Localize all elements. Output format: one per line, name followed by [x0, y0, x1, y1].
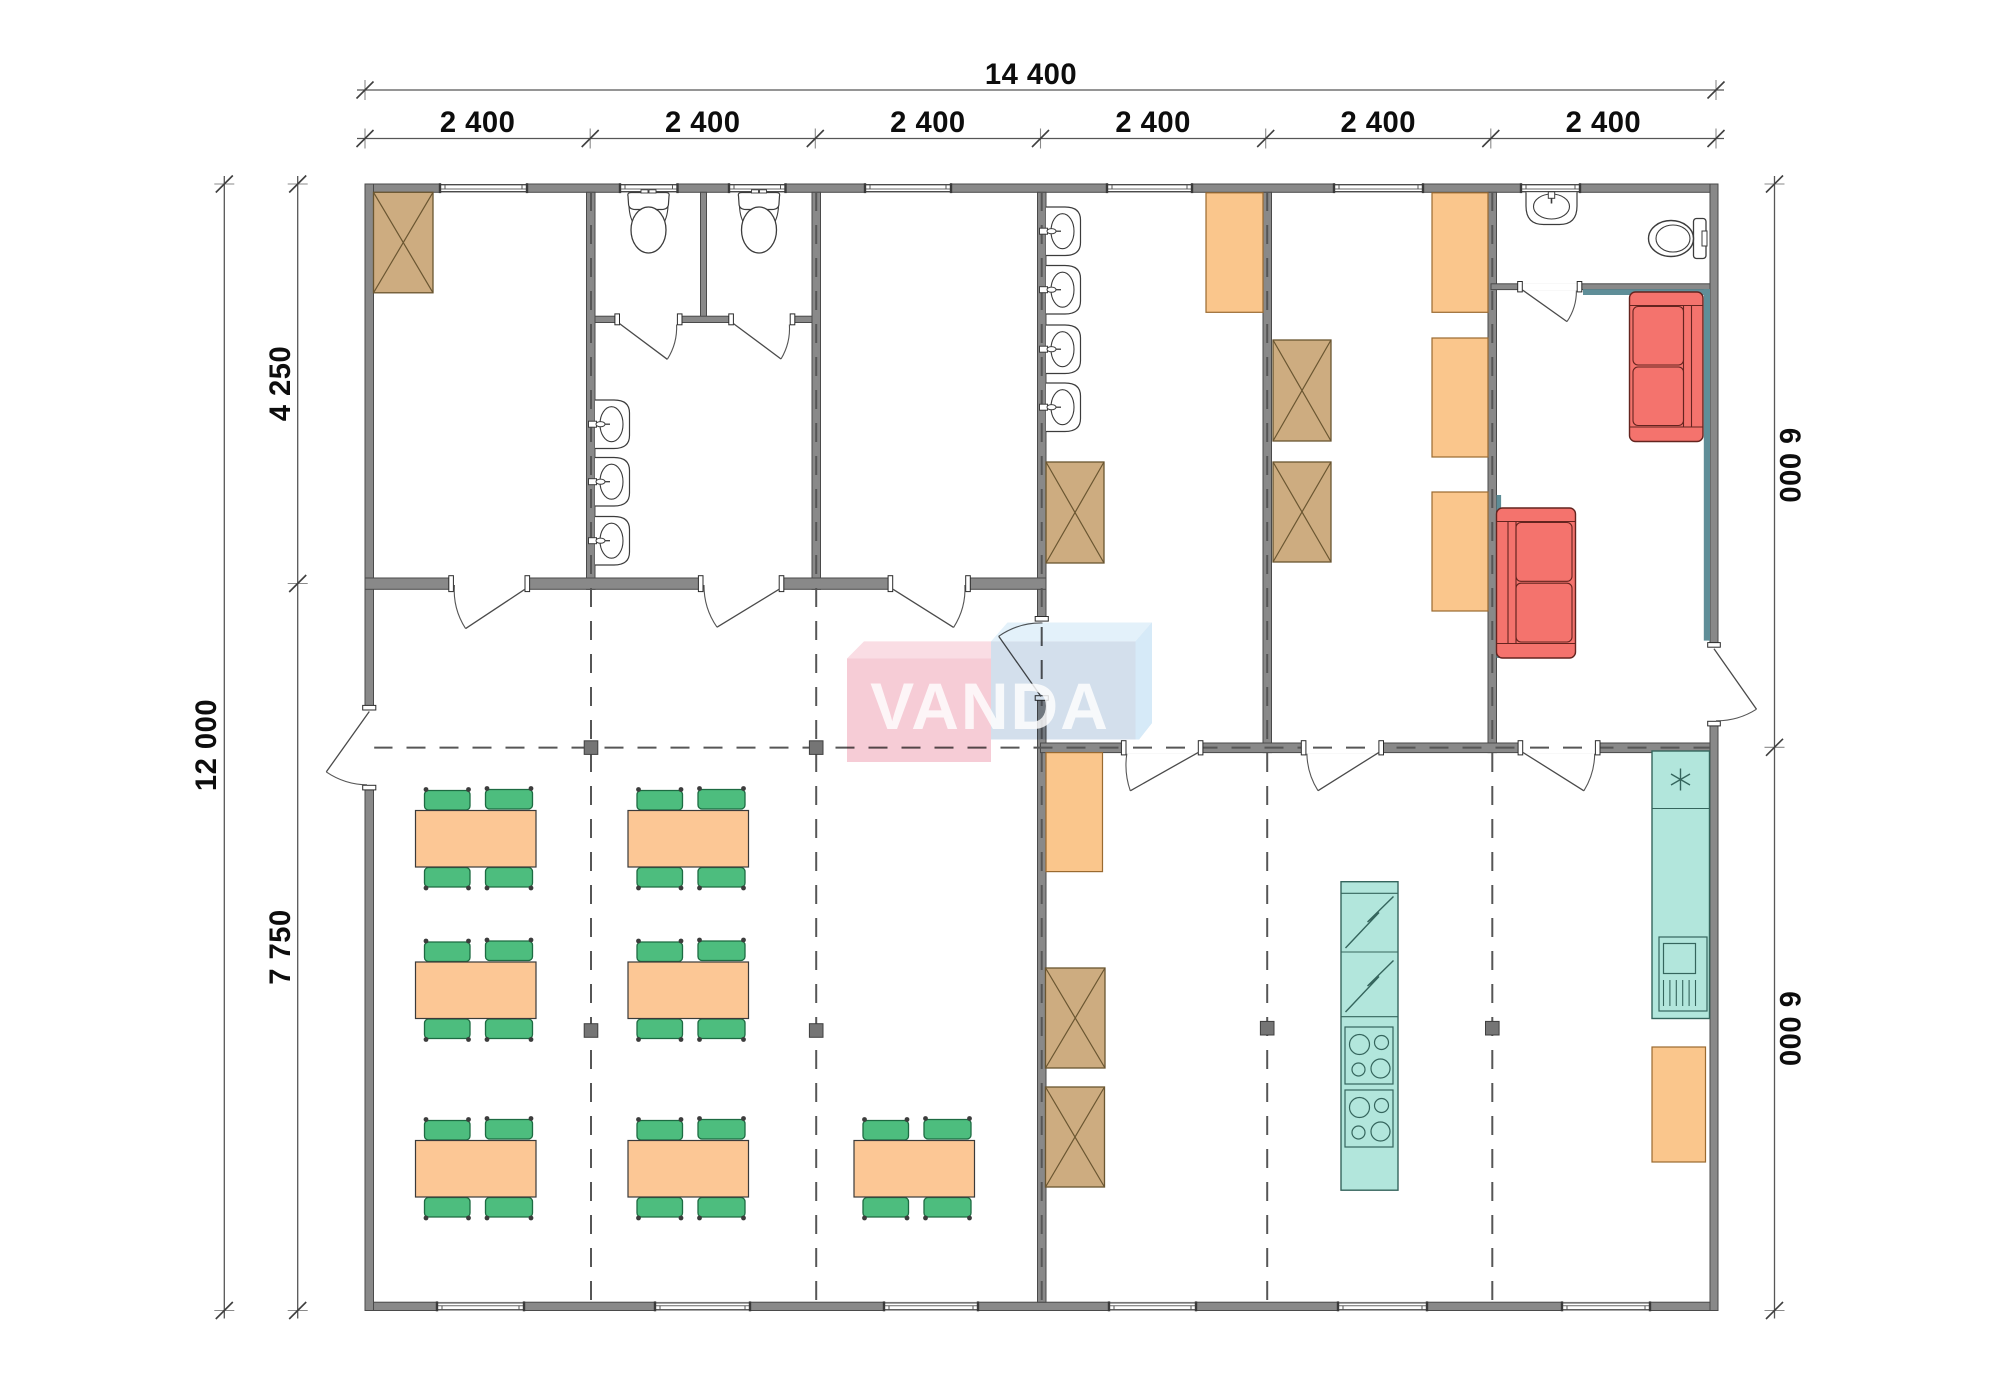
- svg-text:2 400: 2 400: [1115, 107, 1191, 139]
- svg-text:14 400: 14 400: [985, 59, 1077, 91]
- svg-text:6 000: 6 000: [1773, 428, 1805, 504]
- svg-text:2 400: 2 400: [440, 107, 516, 139]
- svg-text:2 400: 2 400: [890, 107, 966, 139]
- svg-text:2 400: 2 400: [1566, 107, 1642, 139]
- svg-text:12 000: 12 000: [191, 699, 223, 791]
- svg-text:4 250: 4 250: [265, 346, 297, 422]
- svg-text:2 400: 2 400: [1340, 107, 1416, 139]
- svg-text:7 750: 7 750: [265, 909, 297, 985]
- svg-text:2 400: 2 400: [665, 107, 741, 139]
- svg-text:6 000: 6 000: [1773, 991, 1805, 1067]
- svg-text:VANDA: VANDA: [870, 669, 1110, 743]
